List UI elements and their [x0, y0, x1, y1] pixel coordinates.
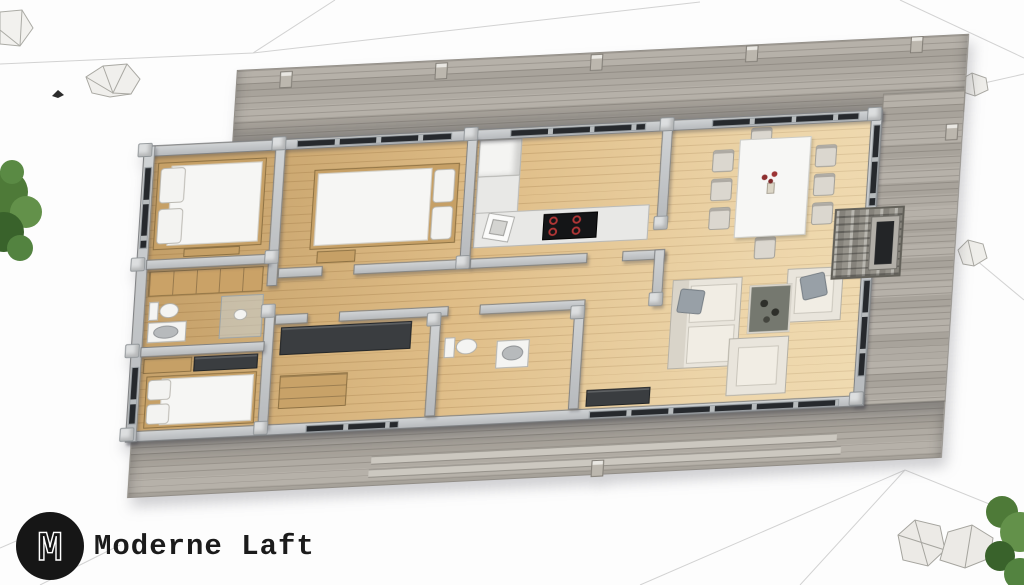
bed-pillow	[145, 403, 170, 425]
wardrobe-wood	[143, 357, 192, 374]
deck-post	[279, 71, 293, 88]
bed-pillow	[430, 206, 454, 241]
stone-fireplace	[831, 206, 905, 280]
rock-right	[958, 240, 987, 266]
dining-chair	[811, 202, 834, 225]
table-item	[771, 308, 779, 316]
armchair	[725, 336, 789, 397]
armchair-seat	[736, 345, 779, 386]
toilet-tank	[148, 302, 159, 321]
wall-inner	[275, 313, 309, 325]
dining-chair	[708, 207, 731, 230]
deck-post	[745, 45, 759, 62]
log-post	[119, 427, 134, 442]
flower-vase	[766, 182, 774, 194]
dining-chair	[754, 236, 777, 259]
log-post	[849, 391, 864, 406]
log-post	[653, 215, 668, 230]
log-post	[867, 107, 882, 122]
table-item	[763, 316, 770, 323]
dining-chair	[815, 144, 838, 167]
log-post	[260, 303, 275, 318]
rock-top-left	[86, 64, 140, 97]
log-post	[264, 250, 279, 265]
brand-name: Moderne Laft	[94, 530, 315, 563]
deck-post	[590, 54, 604, 71]
bird-mark	[52, 90, 64, 98]
bed-pillow	[147, 379, 172, 401]
bed-duvet	[313, 168, 432, 246]
log-post	[570, 305, 585, 320]
log-post	[124, 344, 139, 359]
deck-post	[945, 123, 959, 140]
table-item	[760, 300, 768, 308]
bed-pillow	[159, 167, 187, 204]
brand-monogram-badge: M	[16, 512, 84, 580]
log-post	[463, 127, 478, 142]
log-post	[130, 257, 145, 272]
log-post	[455, 255, 470, 270]
firebox	[874, 221, 894, 265]
toilet-tank	[444, 337, 456, 358]
log-post	[137, 143, 152, 158]
bed-pillow	[432, 169, 456, 204]
monogram-m-icon: M	[16, 512, 84, 580]
rock-far-left	[0, 10, 33, 46]
deck-post	[591, 460, 605, 477]
dining-chair	[710, 178, 733, 201]
log-post	[659, 117, 674, 132]
bed-duvet	[159, 374, 254, 425]
render-scene: M Moderne Laft	[0, 0, 1024, 585]
shrub-left	[0, 160, 42, 261]
dining-chair	[712, 149, 735, 172]
storage-dresser	[278, 372, 348, 409]
fridge	[477, 138, 522, 177]
log-post	[271, 136, 286, 151]
bed-pillow	[156, 208, 184, 245]
log-post	[253, 421, 268, 436]
floor-plan	[107, 34, 969, 512]
foot-chest	[316, 249, 356, 263]
log-post	[426, 312, 441, 327]
hall-sideboard	[585, 387, 650, 407]
deck-post	[434, 62, 448, 79]
deck-post	[910, 36, 924, 53]
svg-text:M: M	[37, 525, 62, 573]
dining-chair	[813, 173, 836, 196]
coffee-table	[747, 283, 793, 333]
rocks-bottom-right	[898, 520, 993, 568]
log-post	[648, 292, 663, 307]
brand-logo: M Moderne Laft	[16, 512, 315, 580]
sofa-pillow	[676, 288, 706, 314]
